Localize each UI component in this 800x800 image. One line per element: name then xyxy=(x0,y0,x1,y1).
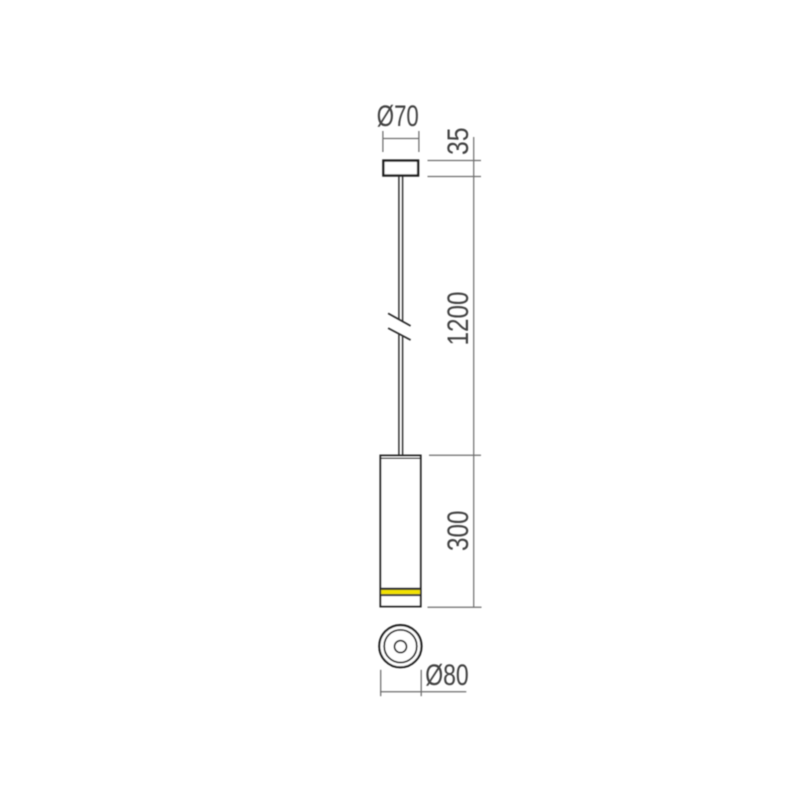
svg-text:1200: 1200 xyxy=(442,292,475,346)
svg-text:Ø70: Ø70 xyxy=(377,100,419,133)
svg-text:Ø80: Ø80 xyxy=(425,659,469,692)
svg-text:300: 300 xyxy=(442,511,475,552)
svg-text:35: 35 xyxy=(442,128,475,156)
